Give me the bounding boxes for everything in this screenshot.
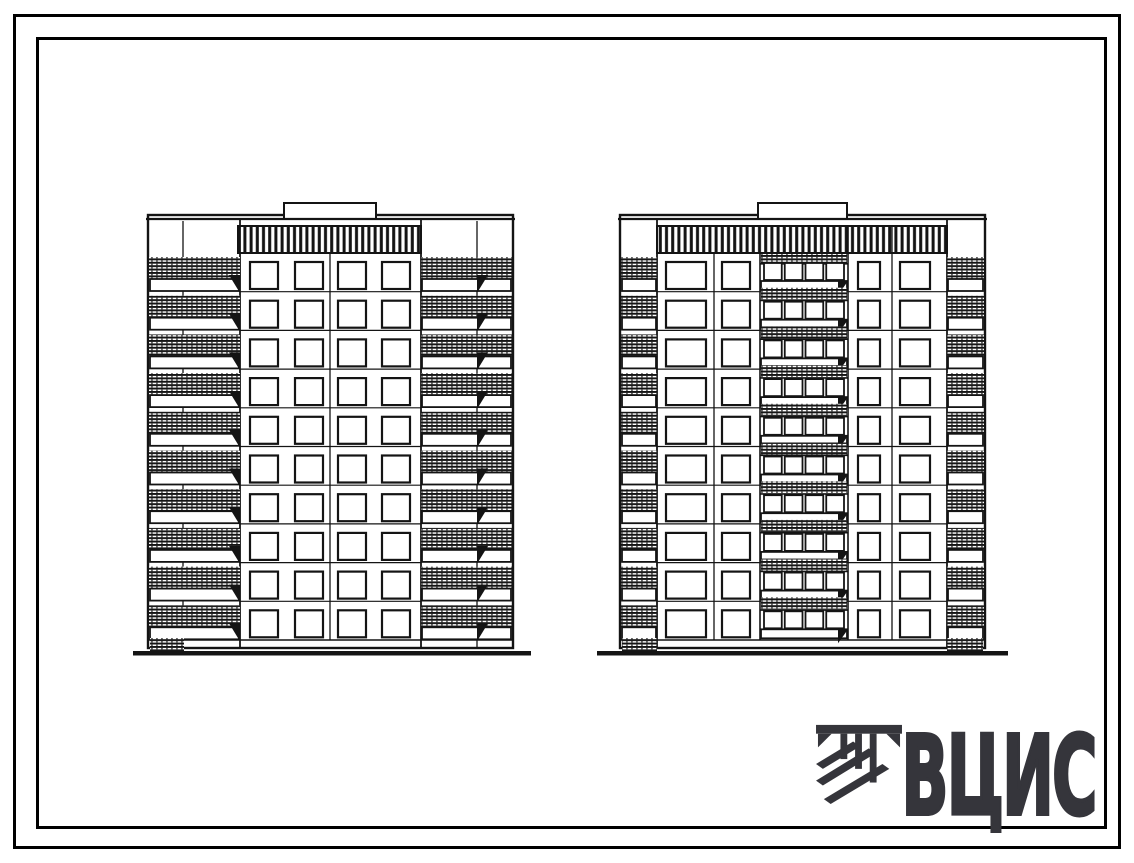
right-block-section-elevation <box>597 203 1008 656</box>
vcis-logo-emblem-icon <box>814 721 904 805</box>
vcis-logo: ВЦИС <box>814 721 1096 805</box>
vcis-logo-text: ВЦИС <box>902 721 1096 831</box>
left-block-section-elevation <box>133 203 531 656</box>
drawing-sheet: ВЦИС <box>0 0 1134 863</box>
